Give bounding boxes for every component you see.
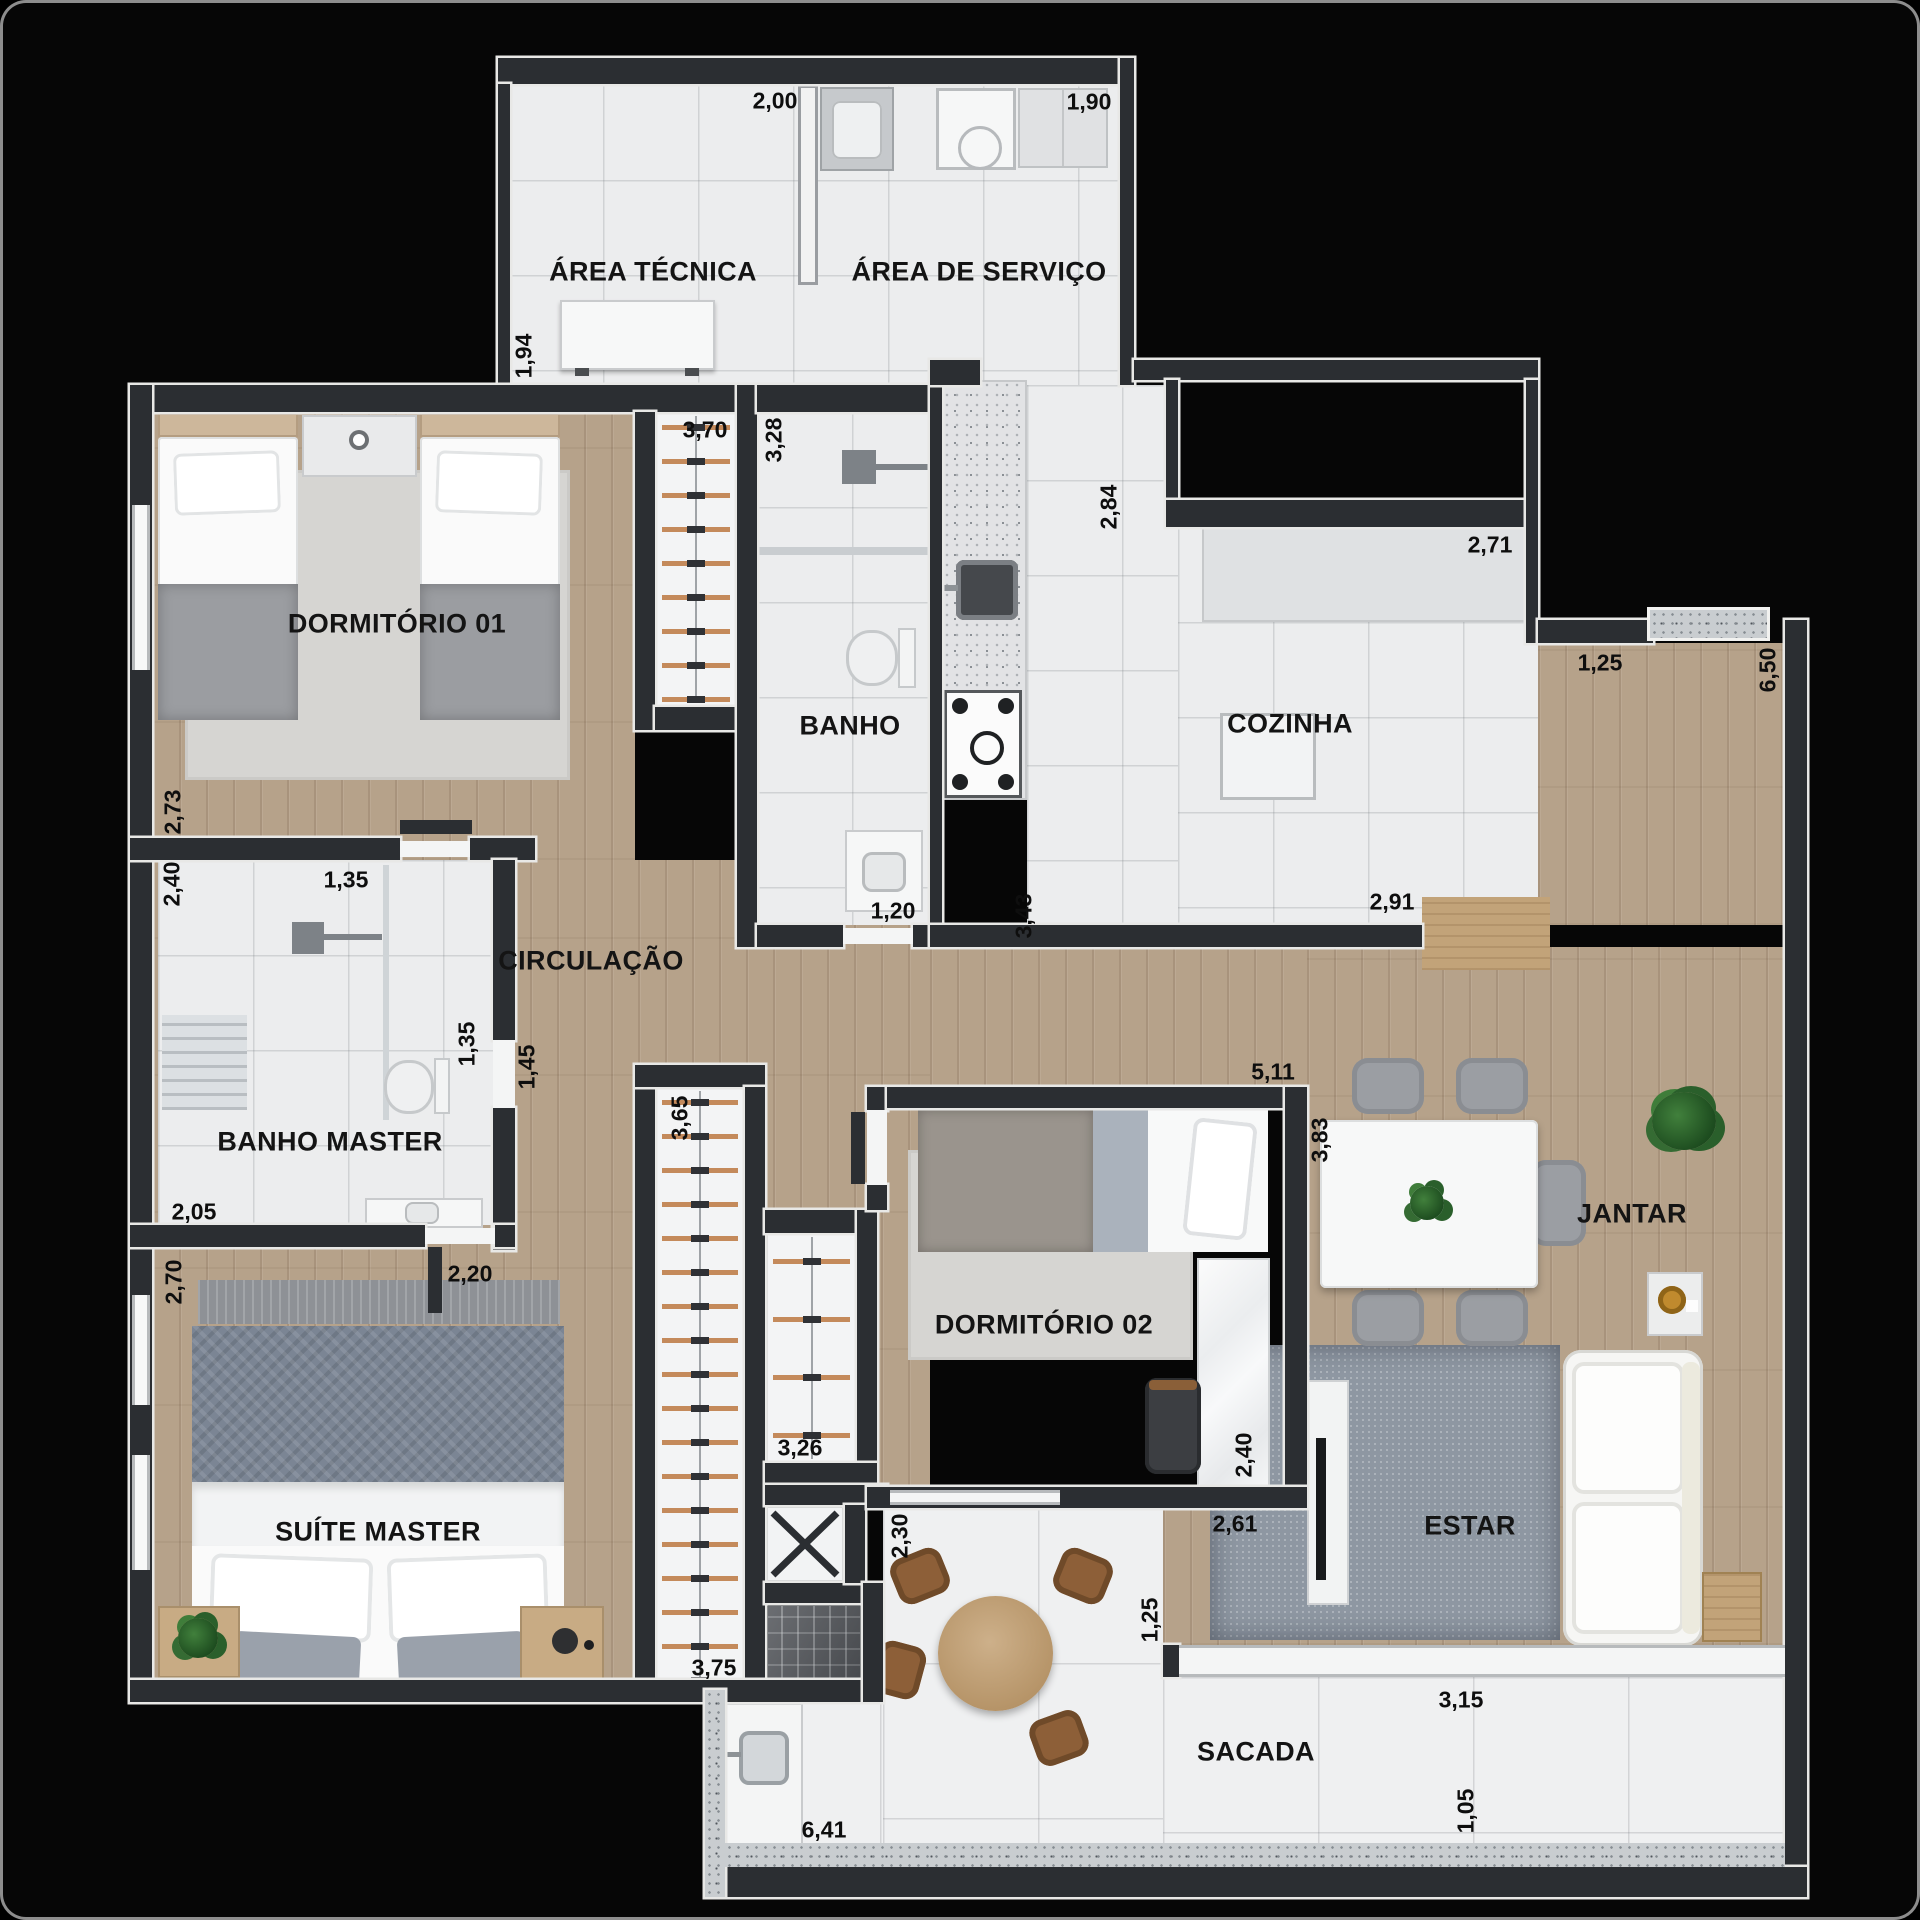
dim-label: 2,00 [753,88,798,115]
dining-chair [1352,1058,1424,1114]
balcony-sink [739,1731,789,1785]
room-label-banho-master: BANHO MASTER [217,1127,442,1158]
wall [130,385,757,412]
bed-single-headboard [158,413,298,437]
door-sill-suite [425,1228,495,1244]
heater-foot [575,368,589,376]
dim-label: 3,83 [1307,1118,1334,1163]
stove-burner [998,698,1014,714]
master-basin [405,1202,439,1224]
wall [1120,58,1134,385]
dim-label: 6,50 [1755,648,1782,693]
dim-label: 1,35 [324,867,369,894]
desk-chair [1145,1378,1201,1474]
tv [1316,1438,1326,1580]
toilet-tank [898,628,916,688]
wall [757,385,942,412]
sacada-granite-border [725,1843,1785,1867]
toilet-tank [434,1058,450,1114]
laundry-tank-basin [832,101,882,159]
wall [1285,1087,1307,1508]
toilet-bowl [384,1060,434,1114]
closet-clips [691,1089,709,1688]
wall [635,1065,765,1087]
closet-dormitorio-01 [655,412,737,707]
bed-pillow [435,450,543,516]
window-estar-sacada [1179,1645,1785,1677]
floor-entry [1538,643,1785,925]
entry-door-leaf [1650,610,1767,638]
wall [1134,360,1538,380]
desk-chair-wood [1149,1380,1197,1390]
dim-label: 2,40 [1231,1433,1258,1478]
balcony-round-table [938,1596,1053,1711]
wall [1166,500,1538,527]
dim-label: 3,75 [692,1655,737,1682]
room-label-dormitorio-01: DORMITÓRIO 01 [288,609,506,640]
kitchen-sink [956,560,1018,620]
heater-foot [685,368,699,376]
sofa-back [1682,1362,1700,1634]
wall-sacada-bottom [705,1867,1807,1897]
dim-label: 2,05 [172,1199,217,1226]
bed-bench [198,1280,560,1324]
dim-label: 3,15 [1439,1687,1484,1714]
room-label-suite-master: SUÍTE MASTER [275,1517,481,1548]
dim-label: 3,70 [683,417,728,444]
wall [930,925,1422,947]
bed-blanket-strip [1093,1110,1148,1252]
wall [495,1225,515,1247]
door-leaf-dorm02 [851,1112,865,1184]
wall [498,58,1133,84]
dim-label: 2,61 [1213,1511,1258,1538]
washing-machine-door [958,126,1002,170]
room-label-dormitorio-02: DORMITÓRIO 02 [935,1310,1153,1341]
lamp-side-table [1658,1286,1686,1314]
dim-label: 6,41 [802,1817,847,1844]
wall [765,1485,877,1505]
closet-clips [687,414,705,705]
wall [130,838,400,860]
wall [845,1505,865,1583]
window-dorm01 [132,505,150,670]
stove-burner [952,698,968,714]
room-label-area-tecnica: ÁREA TÉCNICA [549,257,757,288]
window-suite [132,1455,150,1570]
room-label-sacada: SACADA [1197,1737,1315,1768]
door-sill-banho [843,928,913,944]
wall [930,360,980,385]
shower-arm [324,934,382,940]
dim-label: 3,28 [761,418,788,463]
breakfast-bar [1422,897,1550,970]
closet-dormitorio-02 [766,1233,857,1463]
wall [130,1680,883,1702]
opening-circulacao [493,1040,515,1108]
stove-burner [998,774,1014,790]
bath-basin [862,852,906,892]
bed-blanket [420,584,560,720]
plant-palm [1652,1092,1716,1150]
dim-label: 1,20 [871,898,916,925]
wall [130,1225,425,1247]
bed-single-headboard [420,413,560,437]
dim-label: 1,45 [514,1045,541,1090]
wall [635,412,655,730]
sofa-cushion [1572,1362,1684,1494]
stove [944,690,1022,798]
wall [887,1087,1307,1108]
wall [867,1087,887,1110]
closet-clips [803,1235,821,1461]
room-label-banho: BANHO [800,711,901,742]
barbecue-grill [765,1603,863,1682]
lamp-suite-dot [584,1640,594,1650]
shaft-x-icon [765,1505,845,1583]
door-leaf-dorm01 [400,820,472,834]
wall [745,1087,765,1702]
room-label-estar: ESTAR [1424,1511,1516,1542]
tv-console [1307,1380,1349,1605]
utility-divider-pilaster [798,85,818,285]
shower-halfwall [757,547,930,555]
wall-window-pillar [1163,1645,1179,1677]
wall-exterior-right [1785,620,1807,1897]
wall [757,925,843,947]
shower-arm [876,464,928,470]
shaft-box [765,1505,845,1583]
dim-label: 2,84 [1096,485,1123,530]
shower-head-icon [842,450,876,484]
stove-center-burner [970,731,1004,765]
wall [857,1210,877,1485]
door-leaf-suite [428,1247,442,1313]
room-label-circulacao: CIRCULAÇÃO [498,946,684,977]
laundry-cabinet-divider [1062,90,1064,166]
sofa-cushion [1572,1502,1684,1634]
room-label-jantar: JANTAR [1577,1199,1687,1230]
bed-blanket [158,584,298,720]
dim-label: 2,20 [448,1261,493,1288]
wall-sacada-left-granite [705,1690,725,1897]
dim-label: 3,43 [1011,894,1038,939]
wall [930,385,942,947]
side-table-item [1686,1300,1698,1312]
dim-label: 1,05 [1453,1789,1480,1834]
wall [1538,620,1653,643]
dim-label: 2,91 [1370,889,1415,916]
dim-label: 2,30 [887,1514,914,1559]
door-sill-dorm01 [400,841,470,857]
dining-chair [1456,1290,1528,1346]
dim-label: 3,65 [667,1096,694,1141]
wall [1526,380,1538,643]
plant-nightstand [178,1618,218,1658]
dim-label: 3,26 [778,1435,823,1462]
dim-label: 5,11 [1251,1059,1295,1086]
dim-label: 1,35 [454,1022,481,1067]
floor-plan-canvas: ÁREA TÉCNICA ÁREA DE SERVIÇO DORMITÓRIO … [0,0,1920,1920]
dim-label: 1,25 [1578,650,1623,677]
room-label-area-servico: ÁREA DE SERVIÇO [851,257,1106,288]
sliding-door-dorm02-sacada [890,1490,1060,1505]
plant-table-centerpiece [1410,1186,1444,1220]
dim-label: 2,70 [161,1260,188,1305]
wall [863,1583,883,1702]
bed-double-blanket [192,1326,564,1482]
dim-label: 1,25 [1137,1598,1164,1643]
wall [867,1185,887,1210]
room-label-cozinha: COZINHA [1227,709,1353,740]
bed-pillow [1182,1117,1258,1241]
wall [635,1065,655,1702]
wall [765,1463,877,1485]
sofa-side-table [1702,1572,1762,1642]
shower-head-icon [292,922,324,954]
dining-chair [1352,1290,1424,1346]
wall [737,385,757,947]
wall [498,84,510,385]
stove-burner [952,774,968,790]
wall [470,838,535,860]
bed-blanket [918,1110,1093,1252]
door-sill-dorm02 [867,1110,887,1185]
bed-pillow [173,450,281,516]
dim-label: 1,94 [511,334,538,379]
dim-label: 2,73 [160,790,187,835]
kitchen-faucet [942,585,958,591]
water-heater [560,300,715,370]
dim-label: 1,90 [1067,89,1112,116]
dim-label: 2,40 [159,862,186,907]
floor-cozinha-west [1027,385,1178,925]
lamp-dorm01 [349,430,369,450]
dim-label: 2,71 [1468,532,1513,559]
closet-suite-master [655,1087,745,1690]
dining-chair [1456,1058,1528,1114]
balcony-faucet [727,1752,741,1757]
toilet-bowl [846,630,898,686]
towel-rug [162,1015,247,1110]
lamp-suite [552,1628,578,1654]
window-suite [132,1295,150,1405]
